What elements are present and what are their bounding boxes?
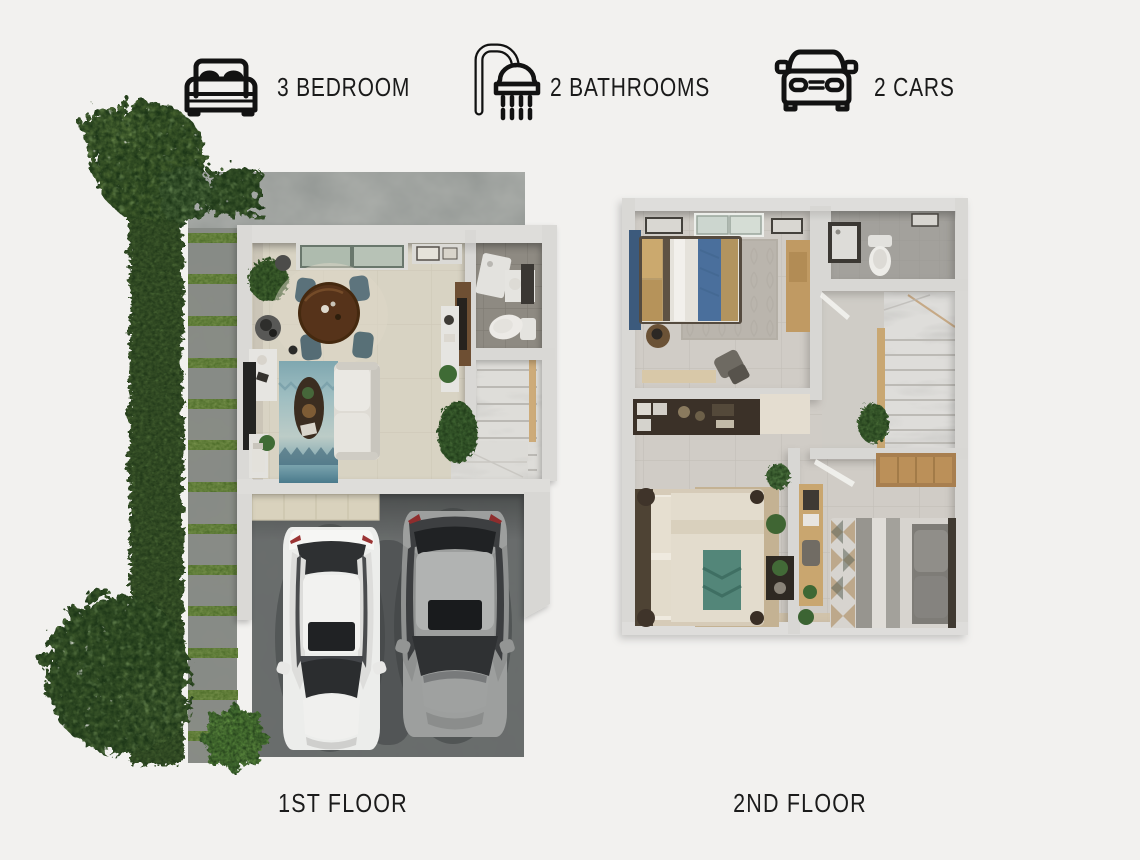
svg-text:2 BATHROOMS: 2 BATHROOMS (550, 73, 710, 101)
svg-text:3 BEDROOM: 3 BEDROOM (277, 73, 410, 101)
svg-text:2 CARS: 2 CARS (874, 73, 955, 101)
svg-text:1ST FLOOR: 1ST FLOOR (278, 789, 408, 818)
svg-text:2ND FLOOR: 2ND FLOOR (733, 789, 867, 818)
